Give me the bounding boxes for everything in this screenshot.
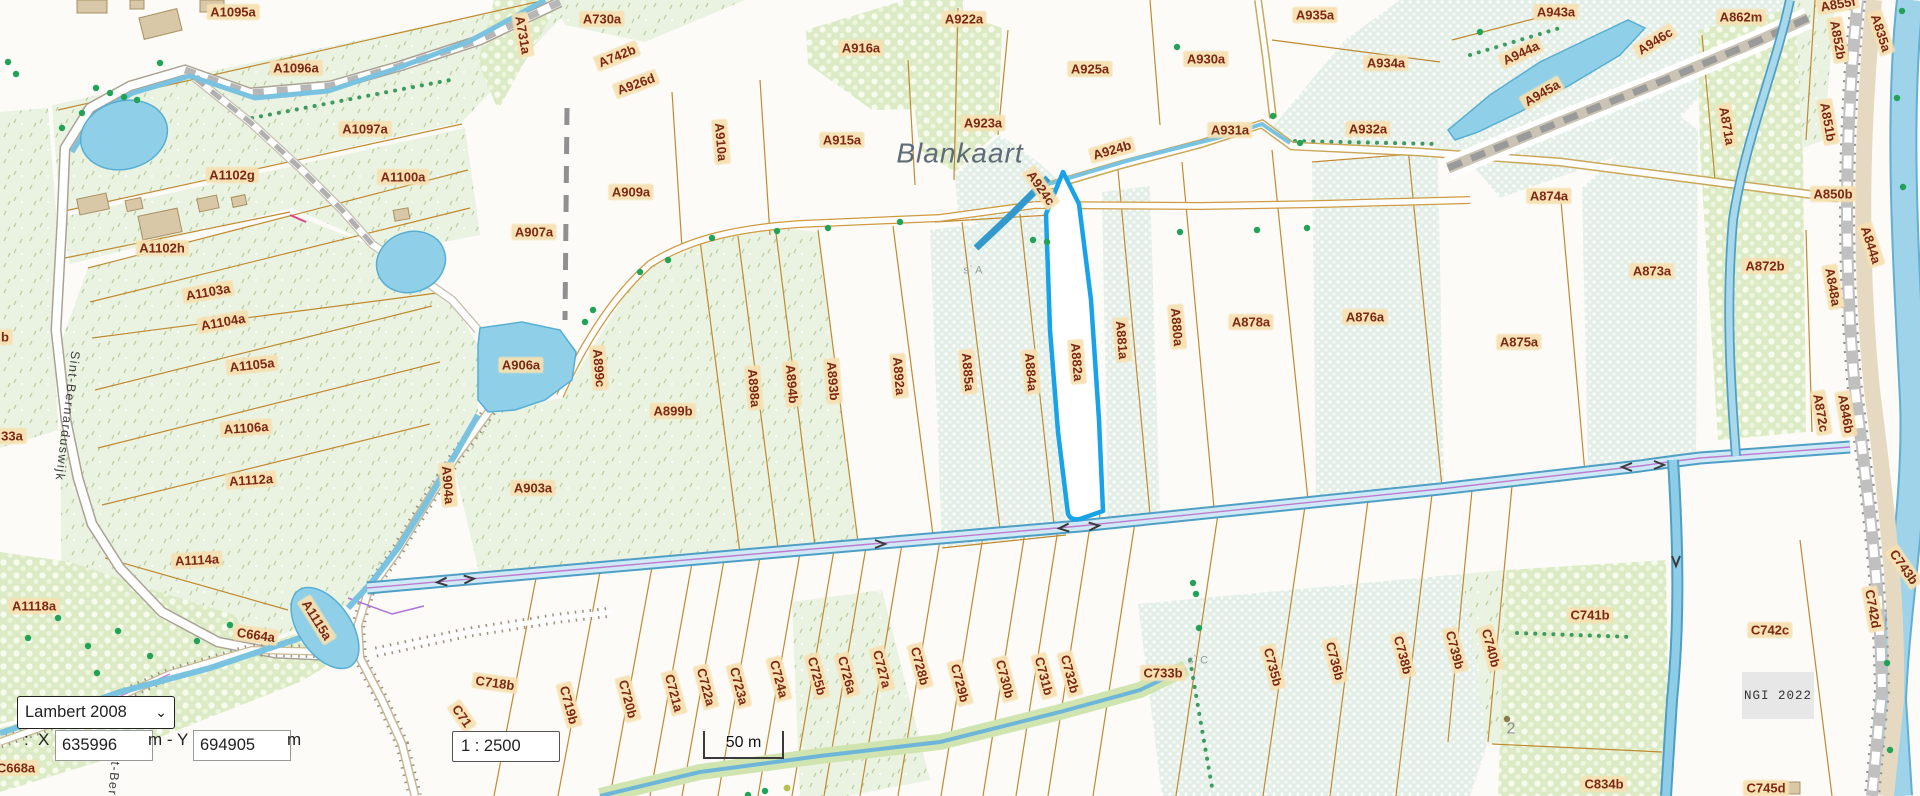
chevron-down-icon: ⌄ [155,704,167,721]
map-canvas[interactable] [0,0,1920,796]
attribution-text: NGI 2022 [1744,689,1812,703]
y-coordinate-input[interactable] [193,730,291,761]
scale-bar: 50 m [703,731,784,759]
railway [1847,0,1896,796]
coord-prefix: : [24,730,29,761]
map-viewport[interactable]: A1095aA1096aA1097aA1102gA1100aA1102hA110… [0,0,1920,796]
unit-mid-label: m - Y [148,730,188,761]
scale-bar-label: 50 m [726,734,762,751]
x-coordinate-input[interactable] [55,730,153,761]
projection-value: Lambert 2008 [25,703,127,722]
x-label: X [38,730,49,761]
unit-end-label: m [287,730,301,761]
projection-select[interactable]: Lambert 2008 ⌄ [17,696,175,729]
scale-input[interactable]: 1 : 2500 [452,731,560,762]
attribution-badge: NGI 2022 [1742,672,1814,719]
